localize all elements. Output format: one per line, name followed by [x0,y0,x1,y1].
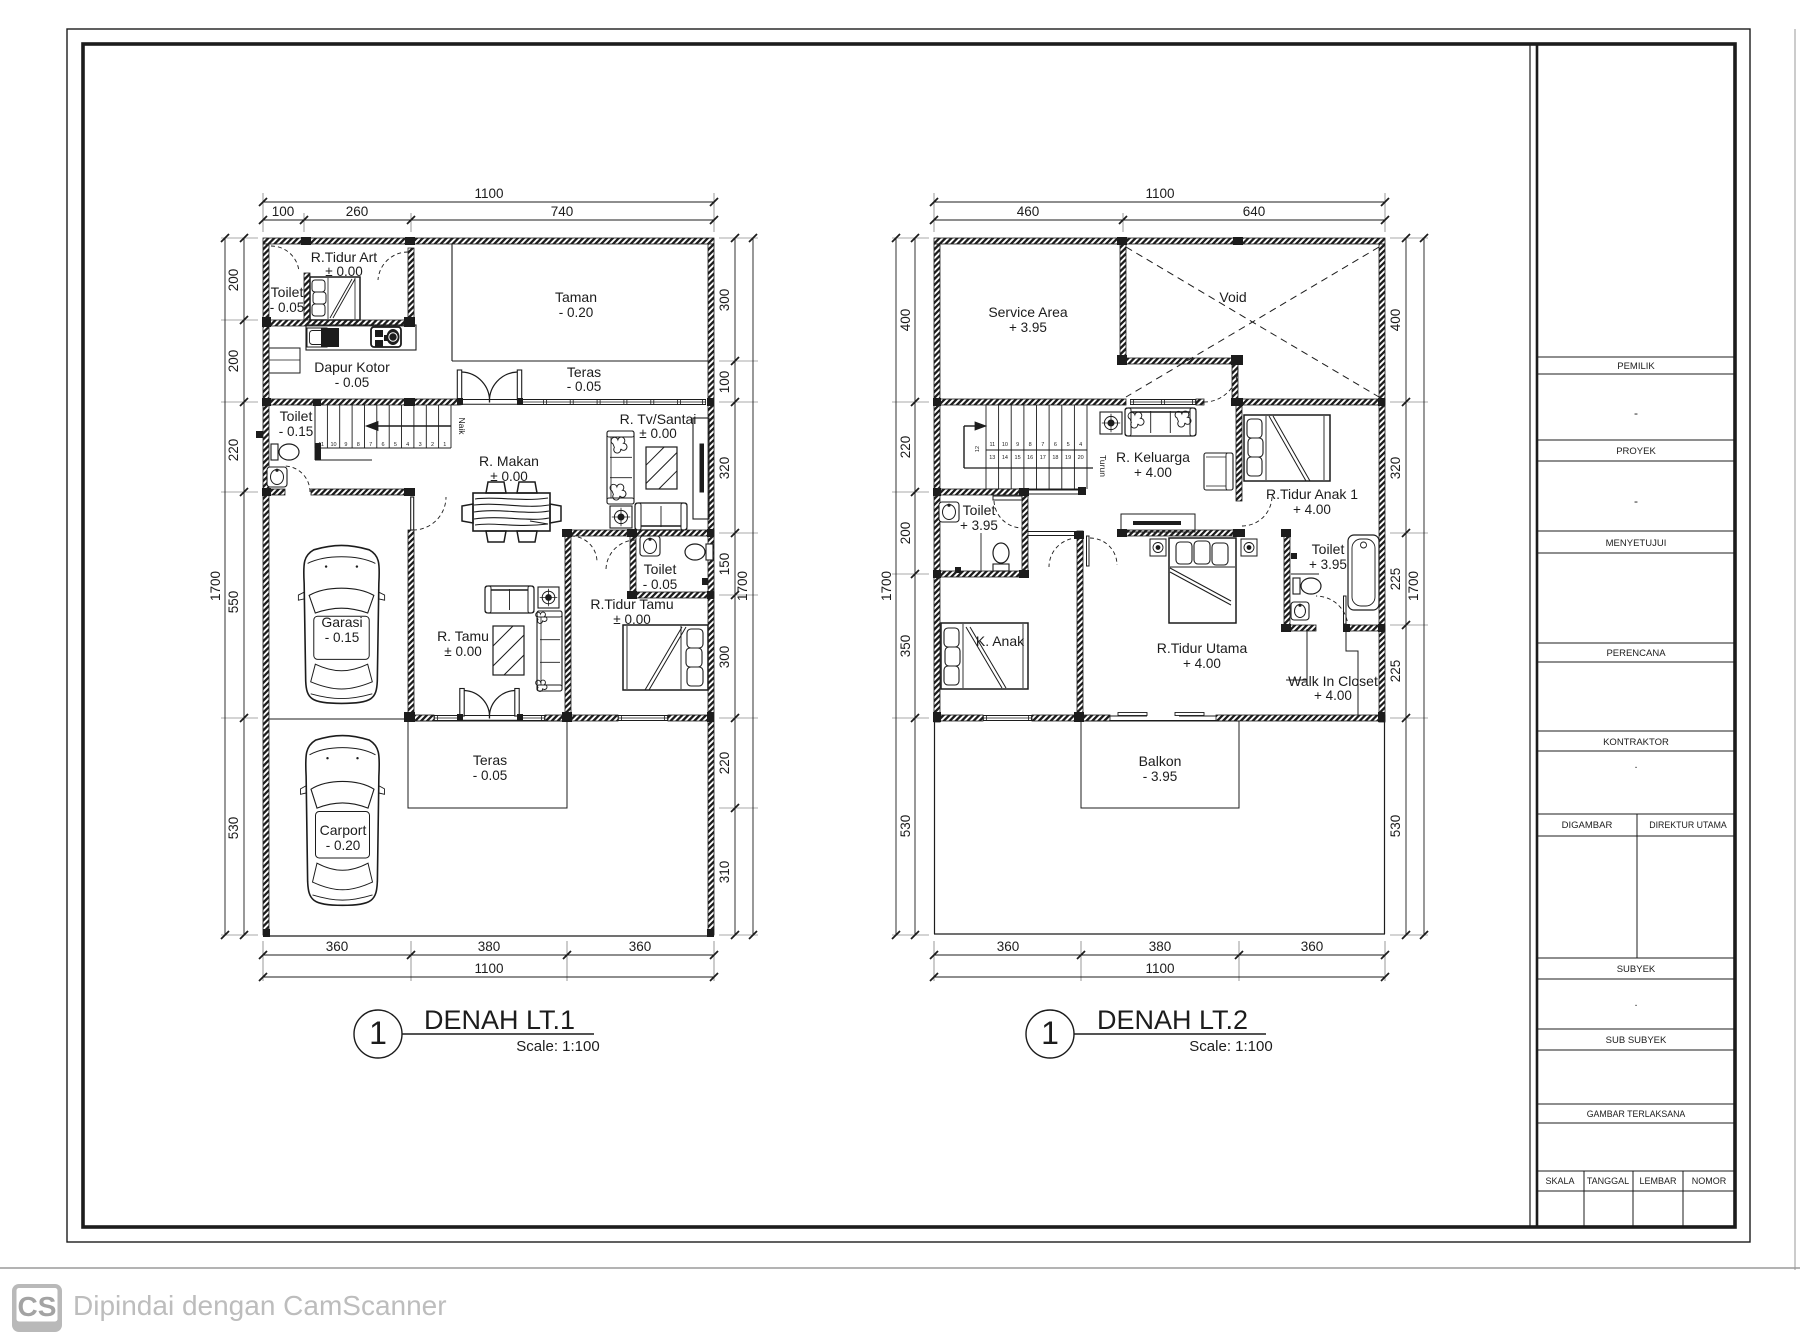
svg-text:200: 200 [226,269,241,292]
svg-text:Toilet: Toilet [1312,541,1345,557]
svg-text:20: 20 [1078,455,1084,461]
svg-text:- 0.15: - 0.15 [279,424,314,439]
svg-text:10: 10 [330,442,336,448]
svg-text:400: 400 [1388,309,1403,332]
svg-text:DIREKTUR UTAMA: DIREKTUR UTAMA [1649,820,1727,830]
svg-text:- 0.20: - 0.20 [559,305,594,320]
svg-text:Dipindai dengan CamScanner: Dipindai dengan CamScanner [73,1290,447,1321]
svg-text:220: 220 [898,436,913,459]
svg-text:- 0.05: - 0.05 [643,577,678,592]
svg-text:R. Tamu: R. Tamu [437,628,489,644]
svg-text:R. Makan: R. Makan [479,453,539,469]
svg-text:Toilet: Toilet [280,408,313,424]
svg-text:NOMOR: NOMOR [1692,1176,1727,1186]
svg-text:PEMILIK: PEMILIK [1617,361,1655,372]
svg-text:Toilet: Toilet [644,561,677,577]
svg-text:17: 17 [1040,455,1046,461]
svg-text:Teras: Teras [567,364,601,380]
svg-text:360: 360 [629,939,652,954]
svg-text:220: 220 [226,439,241,462]
svg-text:380: 380 [1149,939,1172,954]
svg-text:Naik: Naik [457,417,467,435]
svg-text:530: 530 [1388,815,1403,838]
svg-text:1700: 1700 [208,571,223,601]
svg-text:Walk In Closet: Walk In Closet [1288,673,1378,689]
svg-text:SKALA: SKALA [1545,1176,1574,1186]
svg-text:4: 4 [406,442,409,448]
svg-text:1700: 1700 [1406,571,1421,601]
svg-text:260: 260 [346,204,369,219]
svg-text:Service Area: Service Area [988,304,1068,320]
svg-text:Carport: Carport [320,822,367,838]
svg-text:DENAH LT.1: DENAH LT.1 [424,1005,575,1035]
svg-text:R.Tidur Tamu: R.Tidur Tamu [590,596,673,612]
svg-text:400: 400 [898,309,913,332]
svg-text:12: 12 [975,446,981,452]
svg-text:+ 3.95: + 3.95 [1009,320,1047,335]
svg-text:19: 19 [1065,455,1071,461]
svg-text:740: 740 [551,204,574,219]
svg-text:310: 310 [717,861,732,884]
svg-text:PERENCANA: PERENCANA [1606,648,1666,659]
svg-text:± 0.00: ± 0.00 [325,264,362,279]
svg-text:± 0.00: ± 0.00 [444,644,481,659]
svg-text:R.Tidur Anak 1: R.Tidur Anak 1 [1266,486,1358,502]
svg-text:Toilet: Toilet [271,284,304,300]
svg-text:1700: 1700 [735,571,750,601]
svg-text:- 0.05: - 0.05 [270,300,305,315]
svg-text:Taman: Taman [555,289,597,305]
svg-text:+ 3.95: + 3.95 [960,518,998,533]
svg-text:7: 7 [369,442,372,448]
svg-text:PROYEK: PROYEK [1616,446,1656,457]
svg-text:9: 9 [1016,442,1019,448]
svg-text:550: 550 [226,591,241,614]
svg-text:KONTRAKTOR: KONTRAKTOR [1603,737,1669,748]
svg-text:150: 150 [717,553,732,576]
svg-text:16: 16 [1027,455,1033,461]
svg-text:- 0.05: - 0.05 [473,768,508,783]
svg-text:15: 15 [1015,455,1021,461]
svg-text:100: 100 [272,204,295,219]
svg-text:9: 9 [344,442,347,448]
svg-text:Dapur Kotor: Dapur Kotor [314,359,390,375]
svg-text:+ 4.00: + 4.00 [1314,688,1352,703]
svg-text:8: 8 [357,442,360,448]
svg-text:Turun: Turun [1098,455,1108,477]
svg-text:- 0.20: - 0.20 [326,838,361,853]
svg-text:1: 1 [443,442,446,448]
svg-text:Balkon: Balkon [1139,753,1182,769]
svg-text:2: 2 [431,442,434,448]
svg-text:DIGAMBAR: DIGAMBAR [1562,820,1613,831]
svg-text:± 0.00: ± 0.00 [613,612,650,627]
svg-text:100: 100 [717,371,732,394]
svg-text:13: 13 [989,455,995,461]
svg-text:1100: 1100 [1145,186,1174,201]
svg-text:SUBYEK: SUBYEK [1617,964,1656,975]
svg-text:220: 220 [717,752,732,775]
svg-text:DENAH LT.2: DENAH LT.2 [1097,1005,1248,1035]
svg-text:Void: Void [1219,289,1246,305]
svg-text:1700: 1700 [879,571,894,601]
svg-text:1: 1 [1041,1015,1059,1051]
svg-text:R.Tidur Art: R.Tidur Art [311,249,377,265]
svg-text:MENYETUJUI: MENYETUJUI [1606,538,1667,549]
svg-text:1100: 1100 [474,961,503,976]
svg-text:380: 380 [478,939,501,954]
svg-text:200: 200 [898,522,913,545]
svg-text:225: 225 [1388,568,1403,591]
svg-text:+ 4.00: + 4.00 [1134,465,1172,480]
svg-text:320: 320 [1388,457,1403,480]
svg-text:± 0.00: ± 0.00 [490,469,527,484]
svg-text:18: 18 [1052,455,1058,461]
svg-text:- 0.15: - 0.15 [325,630,360,645]
svg-text:5: 5 [1067,442,1070,448]
svg-text:+ 4.00: + 4.00 [1293,502,1331,517]
svg-text:SUB SUBYEK: SUB SUBYEK [1606,1035,1667,1046]
svg-text:+ 3.95: + 3.95 [1309,557,1347,572]
svg-text:200: 200 [226,350,241,373]
svg-text:R. Keluarga: R. Keluarga [1116,449,1190,465]
svg-text:+ 4.00: + 4.00 [1183,656,1221,671]
svg-text:320: 320 [717,457,732,480]
svg-text:360: 360 [326,939,349,954]
svg-text:- 0.05: - 0.05 [335,375,370,390]
svg-text:Teras: Teras [473,752,507,768]
svg-text:1100: 1100 [474,186,503,201]
svg-text:Scale: 1:100: Scale: 1:100 [1189,1038,1272,1055]
svg-text:Scale: 1:100: Scale: 1:100 [516,1038,599,1055]
svg-text:R.Tidur Utama: R.Tidur Utama [1157,640,1248,656]
svg-text:300: 300 [717,646,732,669]
svg-text:460: 460 [1017,204,1040,219]
svg-text:LEMBAR: LEMBAR [1639,1176,1677,1186]
svg-text:7: 7 [1041,442,1044,448]
svg-text:- 0.05: - 0.05 [567,379,602,394]
svg-text:Toilet: Toilet [963,502,996,518]
svg-text:14: 14 [1002,455,1008,461]
svg-text:TANGGAL: TANGGAL [1587,1176,1629,1186]
svg-text:360: 360 [1301,939,1324,954]
svg-text:350: 350 [898,635,913,658]
svg-text:530: 530 [898,815,913,838]
svg-text:GAMBAR TERLAKSANA: GAMBAR TERLAKSANA [1587,1109,1686,1119]
svg-text:3: 3 [419,442,422,448]
svg-text:R. Tv/Santai: R. Tv/Santai [620,411,697,427]
svg-text:± 0.00: ± 0.00 [639,426,676,441]
svg-text:6: 6 [381,442,384,448]
svg-text:4: 4 [1079,442,1082,448]
svg-text:-: - [1634,406,1638,420]
svg-text:-: - [1634,494,1638,508]
svg-text:K. Anak: K. Anak [976,633,1025,649]
svg-text:300: 300 [717,289,732,312]
svg-text:11: 11 [989,442,995,448]
svg-text:1100: 1100 [1145,961,1174,976]
svg-text:.: . [1634,759,1637,771]
svg-text:10: 10 [1002,442,1008,448]
svg-text:1: 1 [369,1015,387,1051]
svg-text:530: 530 [226,817,241,840]
svg-text:.: . [1634,997,1637,1009]
svg-text:Garasi: Garasi [321,614,362,630]
svg-text:225: 225 [1388,660,1403,683]
svg-text:6: 6 [1054,442,1057,448]
svg-text:640: 640 [1243,204,1266,219]
svg-text:CS: CS [18,1291,57,1322]
svg-text:8: 8 [1029,442,1032,448]
svg-text:360: 360 [997,939,1020,954]
svg-text:- 3.95: - 3.95 [1143,769,1178,784]
svg-text:5: 5 [394,442,397,448]
